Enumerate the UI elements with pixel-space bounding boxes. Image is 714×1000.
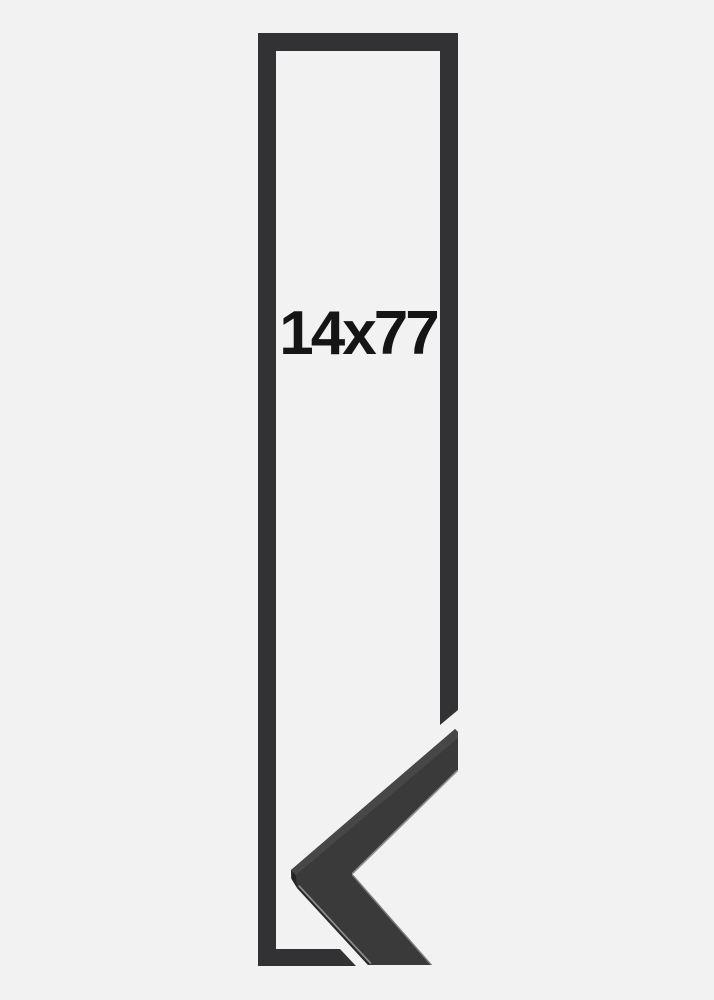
product-image: 14x77 xyxy=(0,0,714,1000)
corner-sample-top-face xyxy=(291,729,458,876)
frame-graphic xyxy=(0,0,714,1000)
size-label: 14x77 xyxy=(258,303,458,365)
corner-sample xyxy=(291,729,458,965)
corner-sample-face xyxy=(291,729,458,965)
